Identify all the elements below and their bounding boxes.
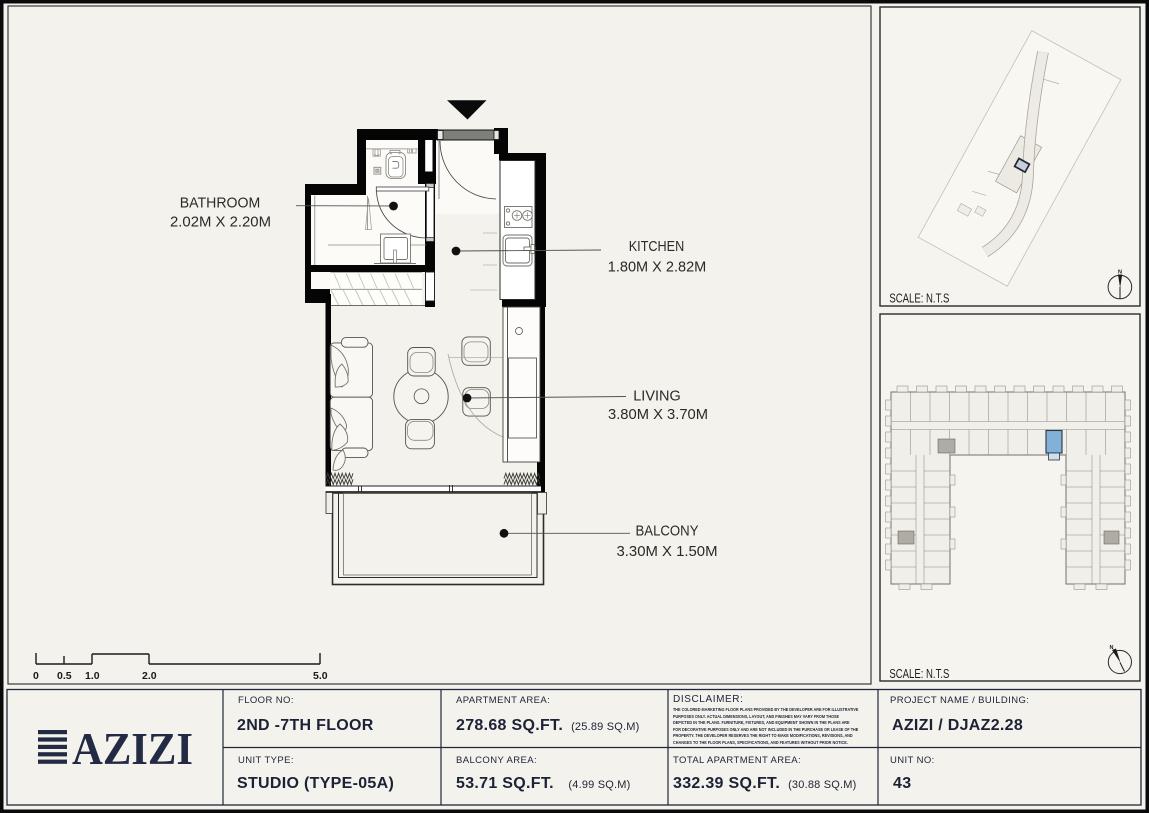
svg-text:N: N xyxy=(1118,270,1122,276)
svg-text:N: N xyxy=(1110,645,1114,651)
svg-text:BALCONY: BALCONY xyxy=(636,523,699,540)
svg-text:KITCHEN: KITCHEN xyxy=(629,238,685,255)
svg-text:3.30M X 1.50M: 3.30M X 1.50M xyxy=(617,543,718,560)
svg-text:1.80M X 2.82M: 1.80M X 2.82M xyxy=(608,258,707,275)
svg-text:SCALE: N.T.S: SCALE: N.T.S xyxy=(889,667,949,681)
svg-text:SCALE: N.T.S: SCALE: N.T.S xyxy=(889,292,949,306)
svg-text:BATHROOM: BATHROOM xyxy=(180,195,261,212)
svg-text:5.0: 5.0 xyxy=(313,670,328,682)
svg-text:0: 0 xyxy=(33,670,39,682)
svg-text:2.02M X 2.20M: 2.02M X 2.20M xyxy=(170,214,271,231)
svg-text:0.5: 0.5 xyxy=(57,670,72,682)
svg-text:3.80M X 3.70M: 3.80M X 3.70M xyxy=(608,406,708,423)
svg-text:2.0: 2.0 xyxy=(142,670,157,682)
svg-text:LIVING: LIVING xyxy=(633,388,681,405)
svg-text:AZIZI: AZIZI xyxy=(72,723,193,774)
svg-text:1.0: 1.0 xyxy=(85,670,100,682)
